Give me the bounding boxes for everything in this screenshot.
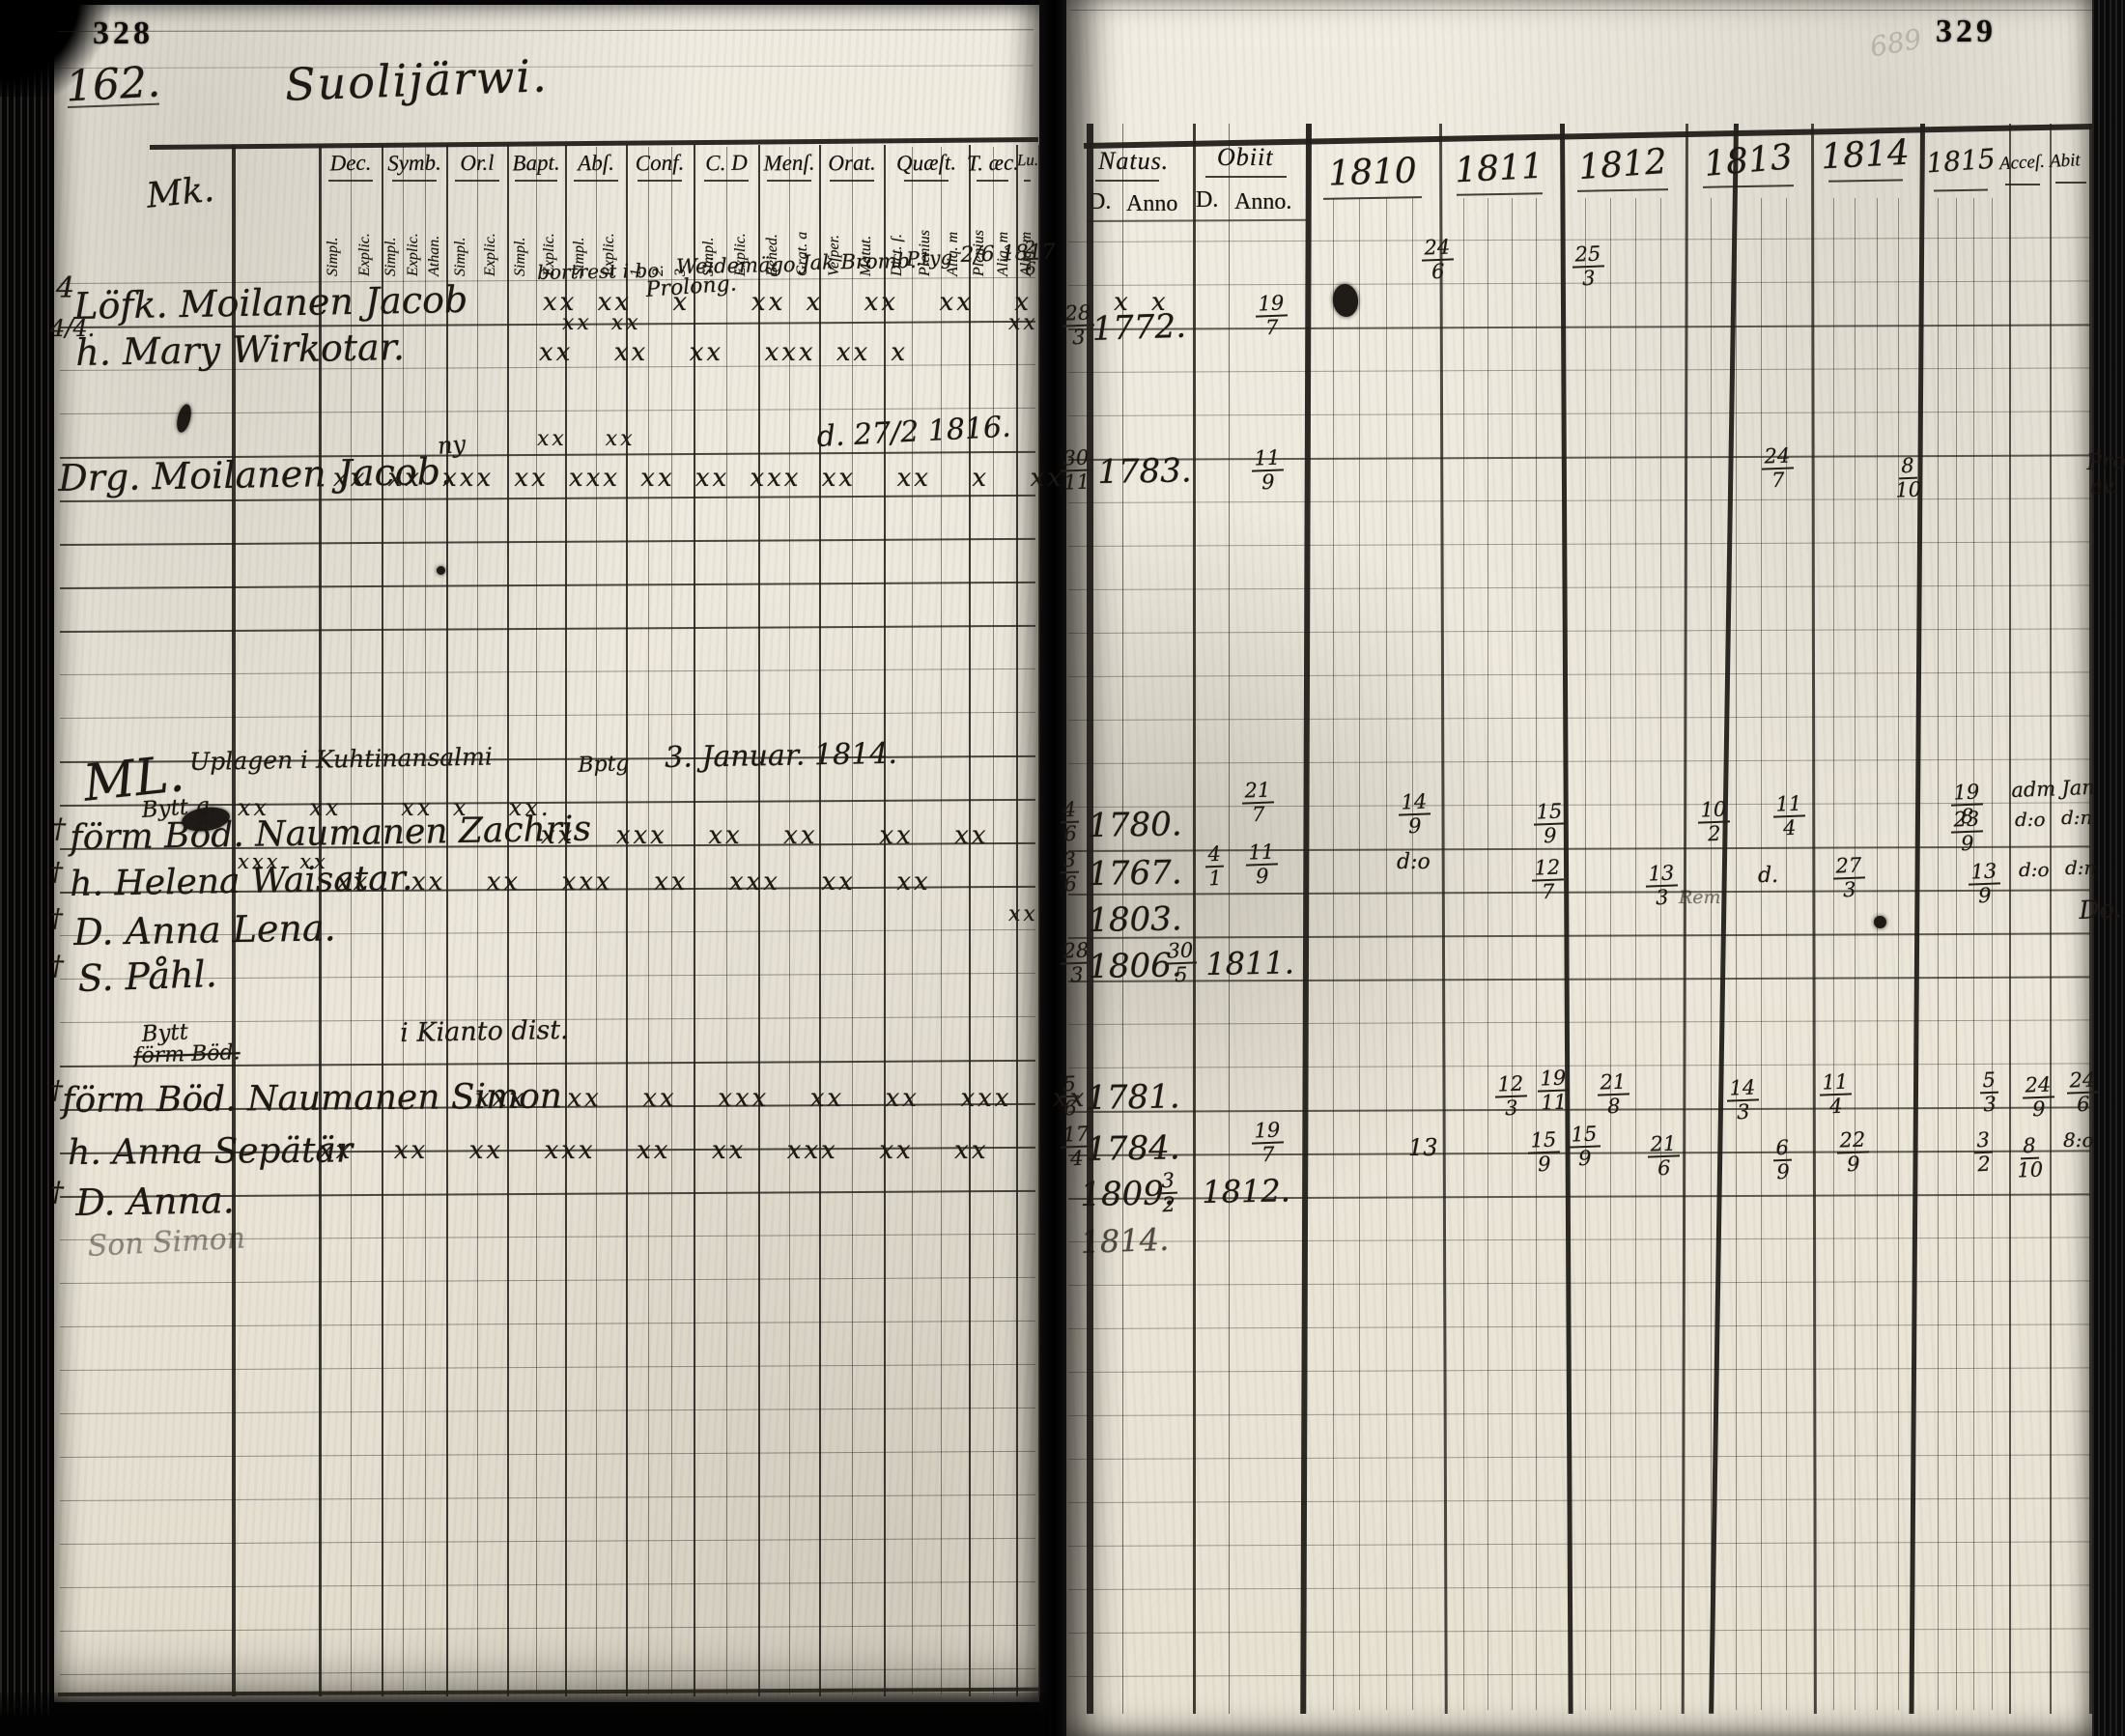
- year-sub-line: [1463, 198, 1464, 1710]
- date-fraction: 1911: [1537, 1067, 1570, 1113]
- fraction-numerator: 8: [2020, 1136, 2039, 1160]
- year-sub-line: [1660, 198, 1661, 1710]
- margin-cross: †: [50, 1179, 64, 1206]
- page-number-right: 329: [1936, 14, 1997, 50]
- fraction-denominator: 3: [1582, 268, 1596, 289]
- date-fraction: 239: [1950, 809, 1983, 854]
- sub-column-line: [425, 147, 426, 1694]
- fraction-numerator: 28: [1062, 302, 1094, 327]
- date-fraction: 229: [1836, 1129, 1869, 1175]
- fraction-numerator: 13: [1645, 863, 1678, 887]
- sub-column-label: Simpl.: [383, 189, 399, 276]
- fraction-numerator: 24: [2022, 1074, 2054, 1098]
- column-label: Symb.: [386, 151, 440, 177]
- communion-marks: xx xx xx xxx xx xxx xx xx: [336, 869, 931, 895]
- obiit-day: 119: [1245, 841, 1278, 887]
- entry-name-anna-lena: D. Anna Lena.: [73, 909, 336, 951]
- natus-year: 1814.: [1080, 1224, 1170, 1258]
- book-edge-left: [0, 0, 54, 1736]
- sub-column-label: Athan.: [427, 189, 442, 276]
- fraction-denominator: 9: [1978, 885, 1992, 906]
- communion-marks: xxx xx xx xxx xx xx xxx xx: [475, 1086, 1087, 1111]
- date-fraction: 133: [1645, 863, 1678, 908]
- entry-name-anna-sepatar: h. Anna Sepätär: [68, 1133, 353, 1171]
- abit-label: Abit: [2049, 150, 2081, 173]
- fraction-denominator: 6: [2077, 1094, 2090, 1115]
- margin-note: d:o: [2015, 810, 2046, 829]
- communion-marks: xx xx: [562, 313, 641, 334]
- date-fraction: 123: [1494, 1073, 1527, 1119]
- date-fraction: 114: [1819, 1071, 1852, 1117]
- grid-vline: [969, 145, 971, 1696]
- year-sub-line: [1610, 198, 1611, 1710]
- fraction-numerator: 30: [1164, 940, 1197, 964]
- year-sub-line: [1786, 198, 1787, 1710]
- fraction-numerator: 10: [1697, 799, 1730, 823]
- fraction-denominator: 9: [2032, 1098, 2046, 1120]
- fraction-denominator: 3: [1505, 1097, 1518, 1119]
- date-fraction: 159: [1533, 801, 1566, 846]
- acces-label: Acceſ.: [1998, 152, 2045, 175]
- sub-column-line: [993, 147, 994, 1694]
- column-label: Conf.: [636, 151, 685, 177]
- date-fraction: 139: [1968, 861, 2000, 906]
- grid-vline: [1038, 145, 1040, 1696]
- fraction-numerator: 14: [1398, 791, 1431, 815]
- year-label: 1814: [1820, 133, 1911, 178]
- date-fraction: 810: [2016, 1136, 2043, 1181]
- fraction-numerator: 4: [1060, 800, 1079, 824]
- year-sub-line: [1973, 198, 1974, 1710]
- margin-cross: †: [50, 906, 63, 931]
- fraction-denominator: 4: [1829, 1096, 1843, 1117]
- sub-column-line: [941, 147, 942, 1694]
- date-fraction: 246: [2066, 1069, 2099, 1115]
- obiit-day: 197: [1255, 293, 1288, 338]
- natus-year: 1781.: [1086, 1080, 1180, 1115]
- fraction-denominator: 3: [1737, 1101, 1750, 1123]
- column-label-underline: [1024, 180, 1031, 182]
- year-sub-line: [1487, 198, 1488, 1710]
- communion-marks: xx xx xx x xx.: [238, 796, 551, 819]
- fraction-numerator: 12: [1494, 1073, 1527, 1097]
- year-sub-line: [1855, 198, 1856, 1710]
- natus-day: 36: [1060, 850, 1080, 896]
- fraction-numerator: 15: [1527, 1129, 1560, 1153]
- date-fraction: 217: [1241, 780, 1274, 825]
- sub-column-label: Simpl.: [326, 189, 341, 276]
- fraction-numerator: 3: [1158, 1171, 1177, 1195]
- margin-cross: †: [50, 953, 64, 980]
- fraction-denominator: 6: [1657, 1157, 1671, 1179]
- fraction-denominator: 2: [1977, 1153, 1991, 1175]
- fraction-denominator: 6: [1063, 1097, 1077, 1119]
- grid-vline: [1193, 124, 1196, 1714]
- annotation-row1-frac: 26: [1021, 240, 1039, 279]
- column-label-underline: [392, 180, 437, 182]
- column-label-underline: [637, 180, 682, 182]
- fraction-denominator: 9: [1847, 1153, 1860, 1175]
- fraction-numerator: 19: [1251, 1120, 1284, 1144]
- year-sub-line: [1635, 198, 1636, 1710]
- fraction-denominator: 6: [1063, 873, 1077, 895]
- natus-label: Natus.: [1098, 147, 1169, 176]
- date-fraction: 273: [1832, 855, 1865, 900]
- date-fraction: 149: [1398, 791, 1431, 837]
- natus-day: 46: [1060, 800, 1080, 845]
- obiit-day: 197: [1251, 1120, 1284, 1165]
- fraction-denominator: 9: [1776, 1161, 1790, 1182]
- date-fraction: 246: [1421, 237, 1454, 282]
- natus-underline: [1095, 180, 1159, 182]
- natus-day: 3011: [1060, 447, 1092, 493]
- column-label: Quæſt.: [896, 150, 956, 176]
- ink-blob: [437, 566, 445, 575]
- annotation-row1-e: 2/6 1817: [960, 242, 1056, 267]
- page-number-left: 328: [93, 15, 154, 52]
- fraction-numerator: 11: [1251, 447, 1284, 471]
- fraction-denominator: 9: [1578, 1148, 1592, 1169]
- annotation-row1-d: P.tyg: [906, 247, 953, 269]
- fraction-numerator: 8: [1898, 456, 1917, 480]
- grid-vline: [382, 145, 383, 1696]
- fraction-numerator: 21: [1597, 1071, 1629, 1096]
- date-fraction: 102: [1697, 799, 1730, 844]
- sub-column-line: [351, 147, 352, 1694]
- fraction-numerator: 27: [1832, 855, 1865, 879]
- fraction-denominator: 2: [1162, 1194, 1176, 1215]
- year-sub-line: [1898, 198, 1899, 1710]
- natus-year: 1803.: [1088, 902, 1182, 937]
- row-prefix: 4: [56, 274, 74, 303]
- margin-note: 8:o: [2063, 1130, 2094, 1150]
- fraction-numerator: 5: [1060, 1074, 1079, 1098]
- year-sub-line: [1992, 198, 1993, 1710]
- fraction-numerator: 13: [1968, 861, 2000, 885]
- date-fraction: 253: [1572, 243, 1604, 289]
- year-sub-line: [1333, 198, 1334, 1710]
- year-label: 1813: [1703, 137, 1795, 185]
- fraction-denominator: 7: [1771, 470, 1785, 491]
- year-sub-line: [1736, 198, 1737, 1710]
- date-fraction: 216: [1647, 1133, 1680, 1179]
- year-label: 1815: [1925, 143, 1996, 180]
- sub-column-line: [403, 147, 404, 1694]
- year-sub-line: [1761, 198, 1762, 1710]
- fraction-denominator: 8: [1607, 1096, 1621, 1117]
- year-sub-line: [1386, 198, 1387, 1710]
- date-fraction: 127: [1531, 857, 1564, 902]
- year-sub-line: [1585, 198, 1586, 1710]
- fraction-numerator: 12: [1531, 857, 1564, 881]
- note-mk: Mk.: [145, 173, 216, 214]
- grid-vline: [446, 145, 448, 1696]
- ruled-line: [1070, 10, 2092, 11]
- year-sub-line: [1412, 198, 1413, 1710]
- sub-column-line: [536, 147, 537, 1694]
- fraction-denominator: 3: [1656, 887, 1669, 908]
- fraction-denominator: 2: [1708, 823, 1721, 844]
- year-sub-line: [1512, 198, 1513, 1710]
- natus-day: 283: [1062, 302, 1094, 348]
- fraction-numerator: 3: [1060, 850, 1079, 874]
- fraction-numerator: 4: [1204, 844, 1224, 868]
- fraction-denominator: 5: [1175, 964, 1188, 985]
- communion-marks: xx xx: [537, 429, 636, 450]
- annotation-district: i Kianto dist.: [400, 1017, 569, 1046]
- fraction-denominator: 3: [1072, 327, 1086, 348]
- entry-name-pahl: S. Påhl.: [77, 955, 217, 997]
- date-fraction: 159: [1568, 1124, 1601, 1169]
- fraction-numerator: 19: [1950, 782, 1983, 806]
- note-formbod: förm Böd.: [133, 1042, 241, 1067]
- annotation-row1-c: Jak Bromb.: [802, 251, 917, 273]
- fraction-denominator: 11: [1063, 471, 1090, 494]
- communion-marks: xx xx xx xxx xx x: [539, 340, 908, 365]
- annotation-cert: Bptg: [578, 754, 630, 777]
- fraction-denominator: 7: [1261, 1144, 1275, 1165]
- obiit-d-label: D.: [1196, 187, 1218, 213]
- year-label: 1811: [1454, 147, 1544, 191]
- year-sub-line: [1536, 198, 1537, 1710]
- communion-marks: xx: [1008, 904, 1038, 925]
- fraction-denominator: 3: [1843, 879, 1856, 900]
- margin-note: Rem: [1679, 889, 1721, 907]
- fraction-numerator: 14: [1726, 1077, 1759, 1101]
- date-fraction: 247: [1761, 445, 1794, 491]
- fraction-denominator: 6: [1431, 261, 1445, 282]
- year-sub-line: [1938, 198, 1939, 1710]
- fraction-numerator: 3: [1973, 1130, 1993, 1154]
- fraction-numerator: 11: [1772, 793, 1805, 817]
- sub-column-line: [789, 147, 790, 1694]
- sub-column-label: Simpl.: [453, 189, 468, 276]
- date-fraction: 32: [1973, 1130, 1994, 1176]
- obiit-year: 1811.: [1205, 947, 1294, 980]
- obiit-year: 1812.: [1202, 1175, 1290, 1208]
- margin-cross: †: [50, 860, 63, 885]
- margin-note: d:n: [2065, 858, 2096, 877]
- date-fraction: 249: [2022, 1074, 2054, 1120]
- date-fraction: 810: [1894, 456, 1921, 501]
- grid-vline: [819, 145, 821, 1696]
- fraction-denominator: 7: [1265, 317, 1279, 338]
- margin-note: d:o: [1397, 852, 1431, 873]
- fraction-denominator: 7: [1252, 804, 1265, 825]
- grid-vline: [694, 145, 695, 1696]
- sub-column-line: [726, 147, 727, 1694]
- fraction-denominator: 3: [1070, 964, 1084, 985]
- fraction-denominator: 9: [1408, 815, 1422, 837]
- margin-note: Do.: [2079, 896, 2122, 924]
- fraction-denominator: 10: [2017, 1159, 2043, 1181]
- natus-day: 56: [1060, 1074, 1080, 1120]
- obiit-day: 305: [1164, 940, 1197, 985]
- grid-vline: [626, 145, 628, 1696]
- year-label: 1812: [1577, 142, 1668, 187]
- grid-vline: [507, 145, 509, 1696]
- obiit-anno-label: Anno.: [1234, 189, 1291, 215]
- communion-marks: xx xx xxx xx xxx xx xx xxx xx xx x xx: [333, 466, 1064, 491]
- sub-column-line: [477, 147, 478, 1694]
- obiit-day: 119: [1251, 447, 1284, 493]
- fraction-denominator: 3: [1983, 1094, 1997, 1115]
- bottom-scan-shadow: [0, 1693, 1049, 1736]
- fraction-denominator: 4: [1783, 817, 1797, 839]
- natus-anno-label: Anno: [1126, 191, 1177, 217]
- entry-name-anna: D. Anna.: [75, 1181, 235, 1221]
- grid-vline: [1229, 124, 1230, 1714]
- sub-column-line: [671, 147, 672, 1694]
- entry-name-moilanen-jacob: Löfk. Moilanen Jacob: [73, 281, 468, 325]
- sub-column-line: [648, 147, 649, 1694]
- parish-heading: Suolijärwi.: [284, 49, 549, 110]
- sub-column-label: Explic.: [483, 189, 498, 276]
- year-sub-line: [1956, 198, 1957, 1710]
- margin-cross: †: [52, 815, 66, 842]
- year-sub-line: [1711, 198, 1712, 1710]
- book-edge-right: [2092, 0, 2125, 1736]
- fraction-numerator: 22: [1836, 1129, 1869, 1153]
- communion-marks: xx xx xx xxx xx xx xxx xx xx: [319, 1138, 989, 1163]
- fraction-numerator: 11: [1245, 841, 1278, 866]
- fraction-numerator: 24: [1761, 445, 1794, 470]
- natus-year: 1784.: [1086, 1131, 1180, 1166]
- date-note: 13: [1408, 1136, 1438, 1159]
- communion-marks: xx xxx xx xx xx xx: [541, 823, 989, 848]
- margin-note: av.: [2090, 476, 2118, 498]
- natus-year: 1783.: [1097, 454, 1192, 489]
- fraction-numerator: 24: [1421, 237, 1454, 261]
- natus-year: 1780.: [1088, 808, 1182, 842]
- fraction-denominator: 9: [1256, 866, 1269, 887]
- margin-note: d:n: [2061, 808, 2092, 827]
- scanned-register-spread: 328 329 689 162. Suolijärwi. Natus. Obii…: [0, 0, 2125, 1736]
- ink-blob: [1874, 916, 1886, 928]
- sub-column-line: [596, 147, 597, 1694]
- fraction-denominator: 6: [1063, 823, 1077, 844]
- fraction-denominator: 9: [1961, 833, 1974, 854]
- fraction-denominator: 9: [1261, 471, 1275, 493]
- fraction-numerator: 21: [1241, 780, 1274, 804]
- fraction-numerator: 5: [1979, 1070, 1998, 1095]
- fraction-numerator: 25: [1572, 243, 1604, 268]
- fraction-numerator: 15: [1533, 801, 1566, 825]
- fraction-numerator: 2: [1021, 240, 1038, 261]
- grid-vline: [758, 145, 760, 1696]
- obiit-day: 32: [1158, 1171, 1178, 1216]
- sub-column-label: Explic.: [357, 189, 373, 276]
- year-label: 1810: [1328, 151, 1418, 193]
- grid-vline: [2009, 124, 2011, 1714]
- date-fraction: 159: [1527, 1129, 1560, 1175]
- annotation-moved: Uplagen i Kuhtinansalmi: [189, 745, 493, 774]
- sub-column-line: [912, 147, 913, 1694]
- fraction-denominator: 10: [1895, 479, 1921, 501]
- natus-year: 1767.: [1088, 856, 1182, 891]
- fraction-numerator: 19: [1537, 1067, 1570, 1092]
- fraction-numerator: 15: [1568, 1124, 1601, 1148]
- fraction-denominator: 7: [1542, 881, 1555, 902]
- date-fraction: 143: [1726, 1077, 1759, 1123]
- fraction-numerator: 11: [1819, 1071, 1852, 1096]
- grid-vline: [565, 145, 567, 1696]
- grid-vline: [884, 145, 886, 1696]
- margin-note: d.: [1758, 866, 1778, 887]
- abit-underline: [2055, 182, 2086, 184]
- column-label-underline: [904, 180, 949, 182]
- entry-name-mary-wirkotar: h. Mary Wirkotar.: [75, 328, 405, 371]
- margin-note: d:o: [2019, 860, 2050, 879]
- date-fraction: 69: [1772, 1138, 1793, 1183]
- sub-column-label: Explic.: [406, 189, 421, 276]
- acces-underline: [2005, 184, 2040, 185]
- margin-note: Prob: [2086, 450, 2125, 474]
- fraction-numerator: 30: [1060, 447, 1092, 471]
- margin-note: adm: [2011, 779, 2056, 801]
- fraction-numerator: 23: [1950, 809, 1983, 833]
- margin-note: Jan: [2061, 778, 2095, 799]
- obiit-underline: [1205, 176, 1287, 178]
- year-sub-line: [1359, 198, 1360, 1710]
- year-sub-line: [1833, 198, 1834, 1710]
- fraction-denominator: 4: [1070, 1148, 1084, 1169]
- natus-year: 1772.: [1091, 310, 1186, 346]
- obiit-label: Obiit: [1217, 143, 1273, 172]
- sub-column-line: [852, 147, 853, 1694]
- date-fraction: 53: [1979, 1070, 1999, 1116]
- date-fraction: 218: [1597, 1071, 1629, 1117]
- communion-marks: xx: [1008, 313, 1038, 334]
- sub-column-label: Simpl.: [513, 189, 528, 276]
- fraction-numerator: 21: [1647, 1133, 1680, 1157]
- entry-name-son-simon: Son Simon: [87, 1224, 246, 1262]
- fraction-denominator: 9: [1538, 1153, 1551, 1175]
- date-fraction: 114: [1772, 793, 1805, 839]
- fraction-numerator: 24: [2066, 1069, 2099, 1094]
- annotation-date: 3. Januar. 1814.: [665, 740, 897, 773]
- annotation-row1-a: bortrest i bo: [537, 261, 659, 282]
- fraction-denominator: 1: [1208, 868, 1222, 889]
- fraction-denominator: 11: [1541, 1092, 1567, 1114]
- grid-vline: [2050, 124, 2052, 1714]
- column-label: Lu.: [1016, 151, 1038, 170]
- fraction-denominator: 9: [1544, 825, 1557, 846]
- fraction-numerator: 19: [1255, 293, 1288, 317]
- fraction-denominator: 6: [1025, 260, 1036, 278]
- fraction-numerator: 6: [1772, 1138, 1792, 1162]
- year-sub-line: [1877, 198, 1878, 1710]
- obiit-day: 41: [1204, 844, 1225, 890]
